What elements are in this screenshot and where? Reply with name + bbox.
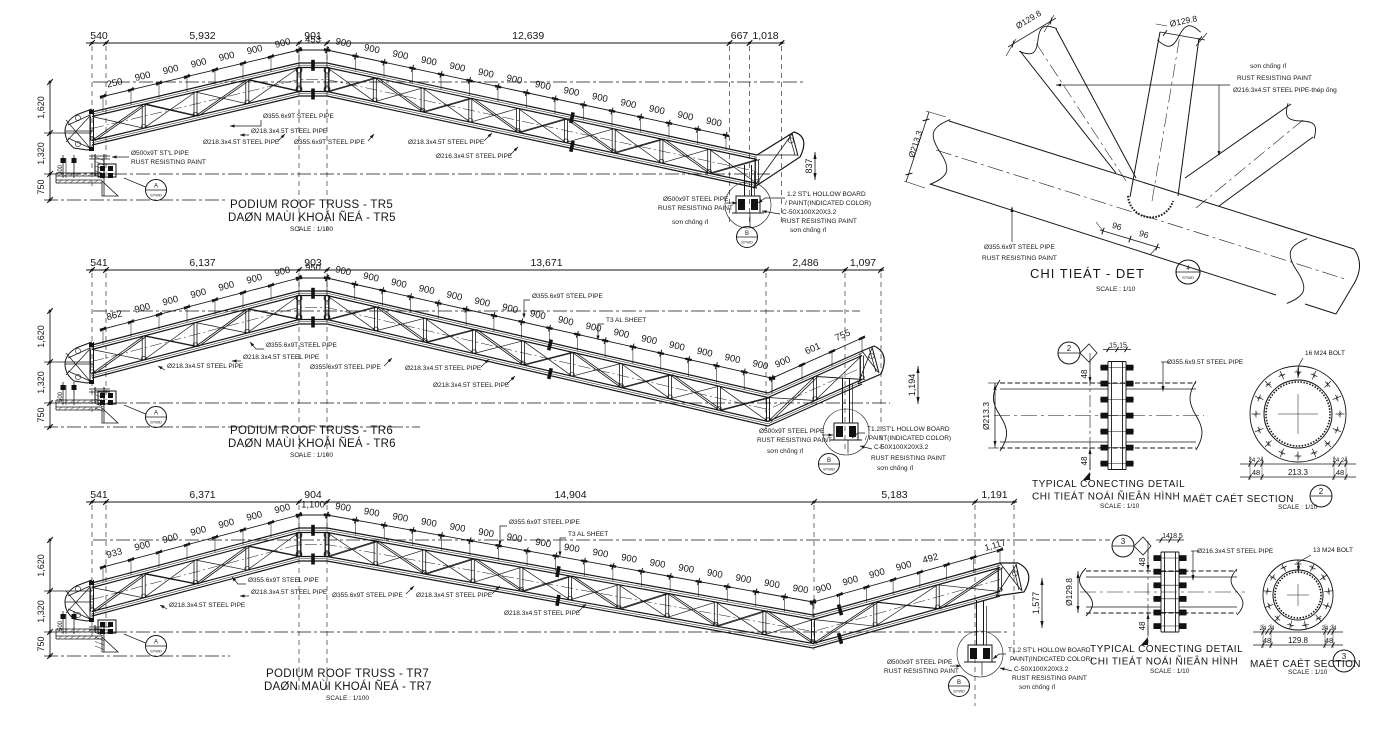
svg-text:RUST RESISTING PAINT: RUST RESISTING PAINT bbox=[871, 455, 946, 462]
svg-text:2: 2 bbox=[1067, 344, 1072, 353]
svg-text:48: 48 bbox=[1263, 636, 1271, 645]
svg-text:T3 AL SHEET: T3 AL SHEET bbox=[606, 317, 646, 324]
svg-text:1,100: 1,100 bbox=[301, 500, 325, 511]
svg-text:A: A bbox=[154, 184, 158, 190]
svg-text:B: B bbox=[827, 458, 831, 464]
svg-text:Ø500x9T ST'L PIPE: Ø500x9T ST'L PIPE bbox=[131, 150, 190, 157]
svg-text:24 24: 24 24 bbox=[1321, 626, 1337, 632]
svg-text:18.5: 18.5 bbox=[1169, 533, 1183, 540]
svg-text:PODIUM ROOF TRUSS - TR7: PODIUM ROOF TRUSS - TR7 bbox=[266, 668, 429, 680]
svg-text:T1.2 ST'L HOLLOW BOARD: T1.2 ST'L HOLLOW BOARD bbox=[1008, 647, 1091, 654]
svg-text:Ø129.8: Ø129.8 bbox=[1064, 578, 1074, 606]
svg-text:Ø355.6x9T STEEL PIPE: Ø355.6x9T STEEL PIPE bbox=[294, 139, 365, 146]
svg-text:CHI TIEÁT NOÁI ÑIEÂN HÌNH: CHI TIEÁT NOÁI ÑIEÂN HÌNH bbox=[1032, 490, 1180, 503]
svg-text:837: 837 bbox=[804, 158, 814, 173]
svg-text:PODIUM ROOF TRUSS - TR5: PODIUM ROOF TRUSS - TR5 bbox=[230, 199, 393, 211]
svg-text:213.3: 213.3 bbox=[1288, 468, 1309, 477]
svg-text:48: 48 bbox=[1252, 468, 1260, 477]
svg-text:1,194: 1,194 bbox=[907, 374, 917, 397]
svg-text:sơn chống rỉ: sơn chống rỉ bbox=[1250, 61, 1287, 70]
svg-text:RUST RESISTING PAINT: RUST RESISTING PAINT bbox=[884, 668, 959, 675]
svg-text:750: 750 bbox=[36, 179, 46, 194]
svg-text:48: 48 bbox=[1325, 636, 1333, 645]
svg-text:453: 453 bbox=[305, 35, 321, 46]
svg-text:1,577: 1,577 bbox=[1031, 592, 1041, 615]
svg-text:14,904: 14,904 bbox=[554, 489, 586, 501]
svg-text:sơn chống rỉ: sơn chống rỉ bbox=[790, 225, 827, 234]
svg-text:2,486: 2,486 bbox=[792, 257, 818, 269]
svg-text:Ø355.6x9T STEEL PIPE: Ø355.6x9T STEEL PIPE bbox=[310, 364, 381, 371]
svg-text:Ø216.3x4.5T STEEL PIPE: Ø216.3x4.5T STEEL PIPE bbox=[1197, 548, 1274, 555]
svg-text:DAØN MAÙI KHOÁI ÑEÁ - TR7: DAØN MAÙI KHOÁI ÑEÁ - TR7 bbox=[264, 680, 432, 693]
svg-text:Ø500x9T STEEL PIPE: Ø500x9T STEEL PIPE bbox=[759, 428, 825, 435]
svg-text:sơn chống rỉ: sơn chống rỉ bbox=[672, 217, 709, 226]
svg-text:C-50X100X20X3.2: C-50X100X20X3.2 bbox=[874, 444, 929, 451]
svg-text:A: A bbox=[154, 411, 158, 417]
svg-text:1,320: 1,320 bbox=[36, 142, 46, 165]
svg-text:SCALE : 1/10: SCALE : 1/10 bbox=[1096, 286, 1136, 293]
svg-text:T3 AL SHEET: T3 AL SHEET bbox=[568, 531, 608, 538]
svg-text:1.2 ST'L HOLLOW BOARD: 1.2 ST'L HOLLOW BOARD bbox=[787, 191, 866, 198]
svg-text:PODIUM ROOF TRUSS - TR6: PODIUM ROOF TRUSS - TR6 bbox=[230, 425, 393, 437]
svg-text:540: 540 bbox=[90, 30, 108, 42]
svg-text:1,018: 1,018 bbox=[752, 30, 778, 42]
svg-text:1,620: 1,620 bbox=[36, 96, 46, 119]
svg-text:T1.2 ST'L HOLLOW BOARD: T1.2 ST'L HOLLOW BOARD bbox=[867, 426, 950, 433]
svg-text:STWD: STWD bbox=[953, 689, 965, 694]
svg-text:13,671: 13,671 bbox=[530, 257, 562, 269]
svg-text:5,932: 5,932 bbox=[189, 30, 215, 42]
svg-text:RUST RESISTING PAINT: RUST RESISTING PAINT bbox=[658, 205, 733, 212]
svg-text:48: 48 bbox=[1080, 369, 1089, 378]
svg-text:B: B bbox=[745, 231, 749, 237]
svg-text:SCALE : 1/100: SCALE : 1/100 bbox=[290, 226, 333, 233]
svg-text:1,191: 1,191 bbox=[981, 489, 1007, 501]
svg-text:Ø218.3x4.5T STEEL PIPE: Ø218.3x4.5T STEEL PIPE bbox=[433, 382, 510, 389]
svg-text:sơn chống rỉ: sơn chống rỉ bbox=[767, 446, 804, 455]
svg-text:SCALE : 1/10: SCALE : 1/10 bbox=[1288, 669, 1328, 676]
svg-text:15: 15 bbox=[1109, 343, 1117, 350]
svg-text:3: 3 bbox=[1121, 537, 1126, 546]
svg-text:sơn chống rỉ: sơn chống rỉ bbox=[877, 463, 914, 472]
svg-text:Ø218.3x4.5T STEEL PIPE: Ø218.3x4.5T STEEL PIPE bbox=[243, 354, 320, 361]
svg-text:541: 541 bbox=[90, 489, 108, 501]
svg-text:SCALE : 1/10: SCALE : 1/10 bbox=[1150, 668, 1190, 675]
svg-text:RUST RESISTING PAINT: RUST RESISTING PAINT bbox=[757, 437, 832, 444]
svg-text:RUST RESISTING PAINT: RUST RESISTING PAINT bbox=[1012, 675, 1087, 682]
svg-text:TYPICAL CONECTING DETAIL: TYPICAL CONECTING DETAIL bbox=[1032, 479, 1185, 490]
svg-text:PAINT(INDICATED COLOR): PAINT(INDICATED COLOR) bbox=[1010, 656, 1092, 663]
svg-text:Ø500x9T STEEL PIPE: Ø500x9T STEEL PIPE bbox=[663, 196, 729, 203]
svg-text:/ PAINT(INDICATED COLOR): / PAINT(INDICATED COLOR) bbox=[785, 200, 871, 207]
svg-text:Ø218.3x4.5T STEEL PIPE: Ø218.3x4.5T STEEL PIPE bbox=[203, 139, 280, 146]
svg-text:1,320: 1,320 bbox=[36, 371, 46, 394]
svg-text:Ø218.3x4.5T STEEL PIPE: Ø218.3x4.5T STEEL PIPE bbox=[251, 589, 328, 596]
svg-text:24 24: 24 24 bbox=[1259, 626, 1275, 632]
svg-text:Ø218.3x4.5T STEEL PIPE: Ø218.3x4.5T STEEL PIPE bbox=[416, 592, 493, 599]
svg-text:5,183: 5,183 bbox=[881, 489, 907, 501]
svg-text:STWD: STWD bbox=[741, 240, 753, 245]
svg-text:STWD: STWD bbox=[1182, 275, 1194, 280]
svg-text:2: 2 bbox=[1319, 487, 1324, 496]
svg-text:Ø355.6x9.5T STEEL PIPE: Ø355.6x9.5T STEEL PIPE bbox=[1167, 359, 1244, 366]
svg-text:sơn chống rỉ: sơn chống rỉ bbox=[1019, 682, 1056, 691]
svg-text:C-50X100X20X3.2: C-50X100X20X3.2 bbox=[1014, 666, 1069, 673]
svg-text:Ø355.6x9T STEEL PIPE: Ø355.6x9T STEEL PIPE bbox=[266, 342, 337, 349]
svg-text:RUST RESISTING PAINT: RUST RESISTING PAINT bbox=[131, 159, 206, 166]
svg-text:CHI TIEÁT NOÁI ÑIEÂN HÌNH: CHI TIEÁT NOÁI ÑIEÂN HÌNH bbox=[1090, 655, 1238, 668]
svg-text:Ø218.3x4.5T STEEL PIPE: Ø218.3x4.5T STEEL PIPE bbox=[408, 139, 485, 146]
svg-text:Ø355.6x9T STEEL PIPE: Ø355.6x9T STEEL PIPE bbox=[984, 244, 1055, 251]
svg-text:48: 48 bbox=[1336, 468, 1344, 477]
svg-text:Ø218.3x4.5T STEEL PIPE: Ø218.3x4.5T STEEL PIPE bbox=[167, 363, 244, 370]
svg-text:Ø218.3x4.5T STEEL PIPE: Ø218.3x4.5T STEEL PIPE bbox=[405, 365, 482, 372]
svg-text:B: B bbox=[957, 680, 961, 686]
svg-text:3: 3 bbox=[1342, 652, 1347, 661]
svg-text:48: 48 bbox=[1138, 621, 1147, 630]
svg-text:Ø500x9T STEEL PIPE: Ø500x9T STEEL PIPE bbox=[887, 659, 953, 666]
svg-text:Ø355.6x9T STEEL PIPE: Ø355.6x9T STEEL PIPE bbox=[332, 592, 403, 599]
svg-text:1,097: 1,097 bbox=[850, 257, 876, 269]
svg-text:SCALE : 1/10: SCALE : 1/10 bbox=[1278, 504, 1318, 511]
svg-text:750: 750 bbox=[36, 636, 46, 651]
svg-text:DAØN MAÙI KHOÁI ÑEÁ - TR5: DAØN MAÙI KHOÁI ÑEÁ - TR5 bbox=[228, 211, 396, 224]
svg-text:SCALE : 1/10: SCALE : 1/10 bbox=[1100, 503, 1140, 510]
svg-text:48: 48 bbox=[1080, 456, 1089, 465]
svg-text:950: 950 bbox=[305, 263, 321, 274]
svg-text:SCALE : 1/100: SCALE : 1/100 bbox=[290, 452, 333, 459]
svg-text:667: 667 bbox=[731, 30, 749, 42]
svg-text:Ø216.3x4.5T STEEL PIPE: Ø216.3x4.5T STEEL PIPE bbox=[436, 153, 513, 160]
svg-text:1,620: 1,620 bbox=[36, 554, 46, 577]
svg-text:RUST RESISTING PAINT: RUST RESISTING PAINT bbox=[1237, 75, 1312, 82]
svg-text:300: 300 bbox=[58, 164, 64, 175]
svg-text:Ø355.6x9T STEEL PIPE: Ø355.6x9T STEEL PIPE bbox=[509, 519, 580, 526]
svg-text:Ø355.6x9T STEEL PIPE: Ø355.6x9T STEEL PIPE bbox=[263, 113, 334, 120]
svg-text:STWD: STWD bbox=[823, 467, 835, 472]
svg-text:500: 500 bbox=[58, 620, 64, 631]
svg-text:C-50X100X20X3.2: C-50X100X20X3.2 bbox=[782, 209, 837, 216]
svg-text:RUST RESISTING PAINT: RUST RESISTING PAINT bbox=[782, 218, 857, 225]
svg-text:13 M24 BOLT: 13 M24 BOLT bbox=[1313, 547, 1353, 554]
svg-text:15: 15 bbox=[1119, 343, 1127, 350]
svg-text:STWD: STWD bbox=[150, 420, 162, 425]
svg-text:12,639: 12,639 bbox=[512, 30, 544, 42]
svg-text:STWD: STWD bbox=[150, 649, 162, 654]
svg-text:RUST RESISTING PAINT: RUST RESISTING PAINT bbox=[982, 255, 1057, 262]
svg-text:1,320: 1,320 bbox=[36, 600, 46, 623]
svg-text:750: 750 bbox=[36, 407, 46, 422]
svg-text:48: 48 bbox=[1138, 557, 1147, 566]
svg-text:16 M24 BOLT: 16 M24 BOLT bbox=[1305, 350, 1345, 357]
svg-text:Ø218.3x4.5T STEEL PIPE: Ø218.3x4.5T STEEL PIPE bbox=[251, 128, 328, 135]
svg-text:6,371: 6,371 bbox=[189, 489, 215, 501]
svg-text:Ø355.6x9T STEEL PIPE: Ø355.6x9T STEEL PIPE bbox=[532, 293, 603, 300]
svg-text:SCALE : 1/100: SCALE : 1/100 bbox=[326, 695, 369, 702]
svg-text:129.8: 129.8 bbox=[1288, 636, 1309, 645]
svg-text:/ PAINT(INDICATED COLOR): / PAINT(INDICATED COLOR) bbox=[865, 435, 951, 442]
svg-text:DAØN MAÙI KHOÁI ÑEÁ - TR6: DAØN MAÙI KHOÁI ÑEÁ - TR6 bbox=[228, 437, 396, 450]
svg-text:CHI TIEÁT - DET: CHI TIEÁT - DET bbox=[1030, 266, 1145, 281]
svg-text:A: A bbox=[154, 640, 158, 646]
svg-text:Ø355.6x9T STEEL PIPE: Ø355.6x9T STEEL PIPE bbox=[248, 577, 319, 584]
svg-text:6,137: 6,137 bbox=[189, 257, 215, 269]
svg-text:1,620: 1,620 bbox=[36, 325, 46, 348]
svg-text:STWD: STWD bbox=[150, 193, 162, 198]
svg-text:Ø218.3x4.5T STEEL PIPE: Ø218.3x4.5T STEEL PIPE bbox=[504, 610, 581, 617]
svg-text:500: 500 bbox=[58, 391, 64, 402]
svg-text:Ø213.3: Ø213.3 bbox=[981, 402, 991, 430]
svg-text:Ø216.3x4.5T STEEL PIPE-thép ốn: Ø216.3x4.5T STEEL PIPE-thép ống bbox=[1233, 85, 1337, 94]
svg-text:541: 541 bbox=[90, 257, 108, 269]
svg-text:TYPICAL CONECTING DETAIL: TYPICAL CONECTING DETAIL bbox=[1090, 644, 1243, 655]
svg-text:Ø218.3x4.5T STEEL PIPE: Ø218.3x4.5T STEEL PIPE bbox=[169, 602, 246, 609]
